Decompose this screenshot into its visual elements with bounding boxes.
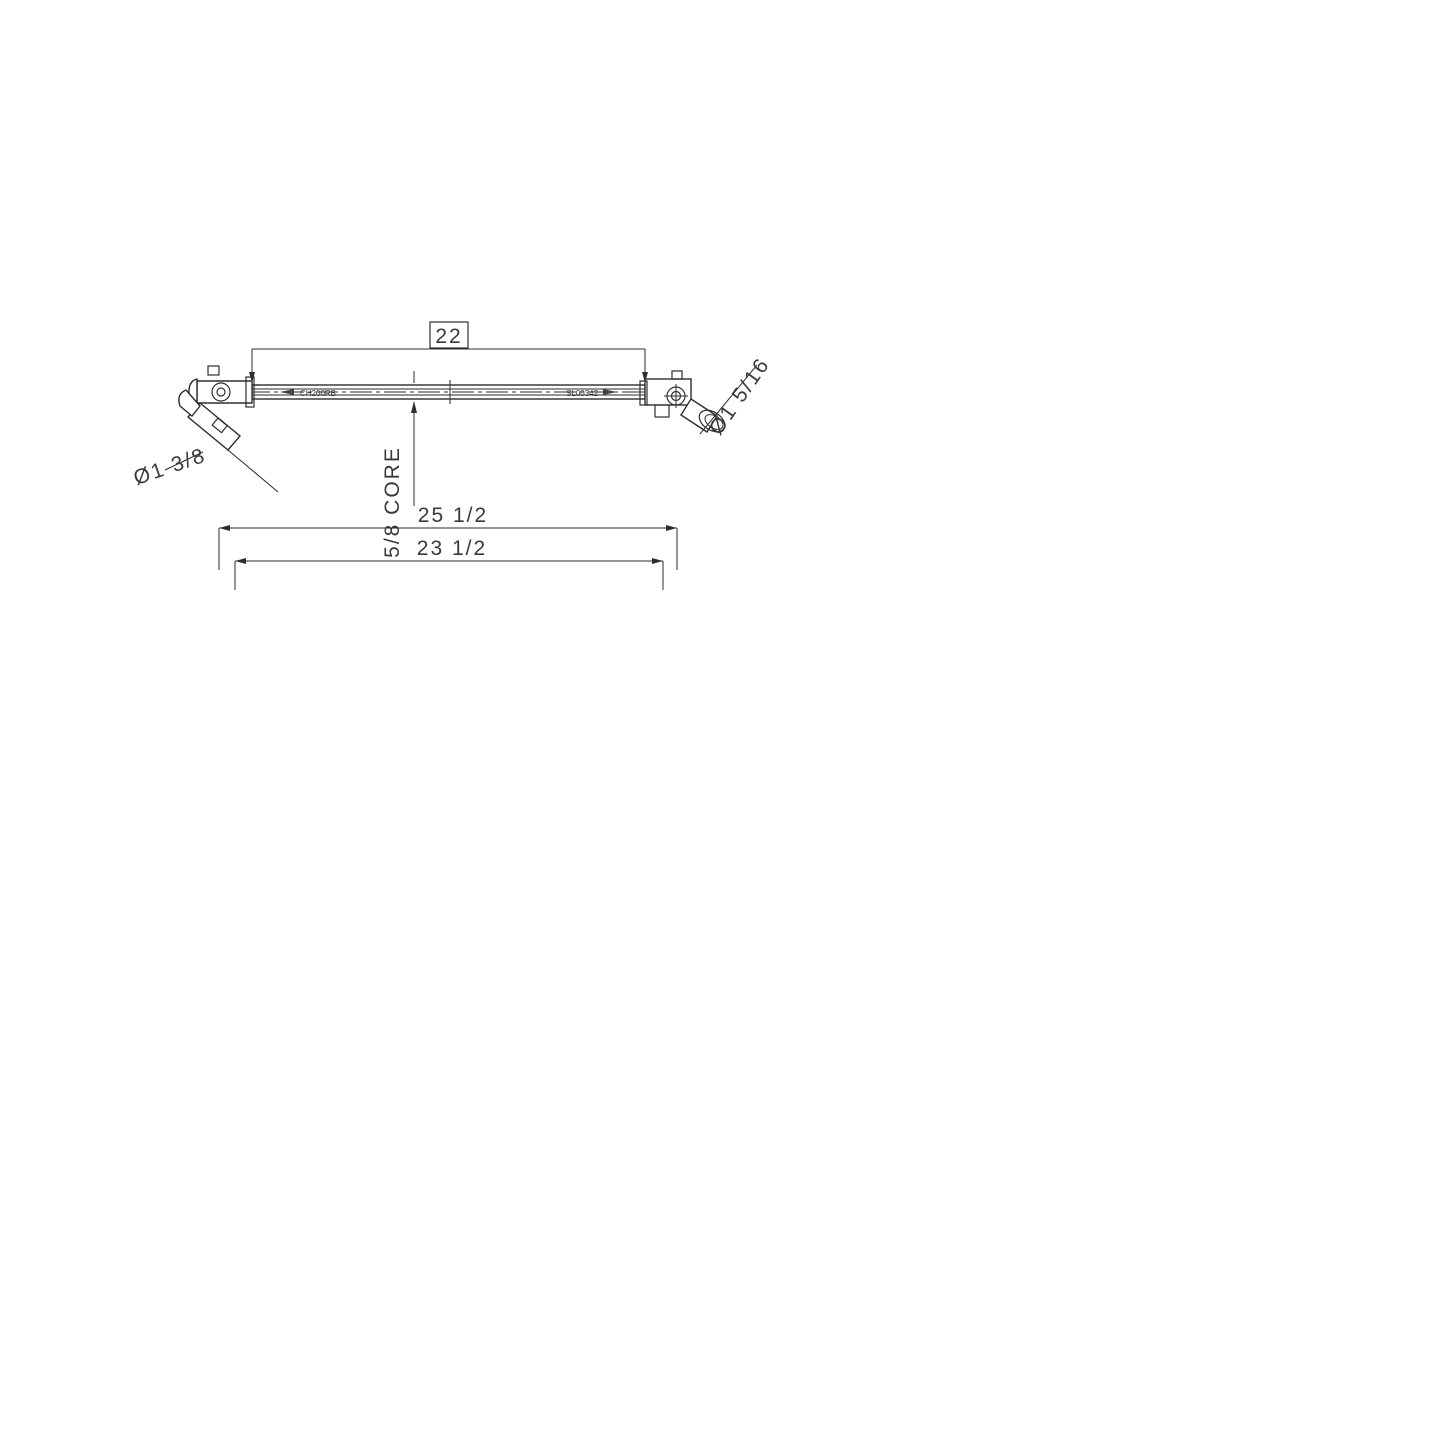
svg-text:23 1/2: 23 1/2 — [417, 537, 487, 560]
svg-text:25 1/2: 25 1/2 — [418, 504, 488, 527]
svg-text:SL00342: SL00342 — [566, 389, 599, 398]
svg-text:22: 22 — [435, 325, 462, 348]
svg-text:5/8 CORE: 5/8 CORE — [381, 446, 404, 558]
svg-text:CH200RB: CH200RB — [300, 389, 336, 398]
